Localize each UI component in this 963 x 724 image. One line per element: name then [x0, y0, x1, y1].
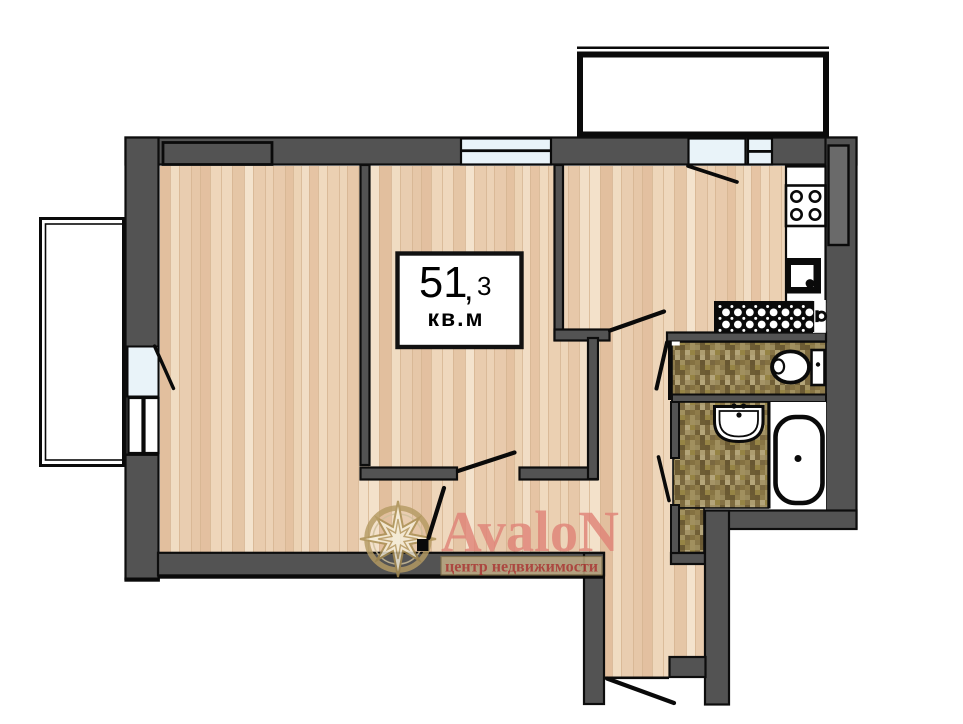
svg-text:3: 3 — [477, 271, 491, 301]
svg-text:центр недвижимости: центр недвижимости — [445, 559, 598, 576]
svg-text:AvaloN: AvaloN — [441, 499, 619, 564]
svg-text:,: , — [464, 270, 473, 308]
svg-text:кв.м: кв.м — [427, 305, 484, 331]
svg-text:51: 51 — [419, 259, 467, 307]
